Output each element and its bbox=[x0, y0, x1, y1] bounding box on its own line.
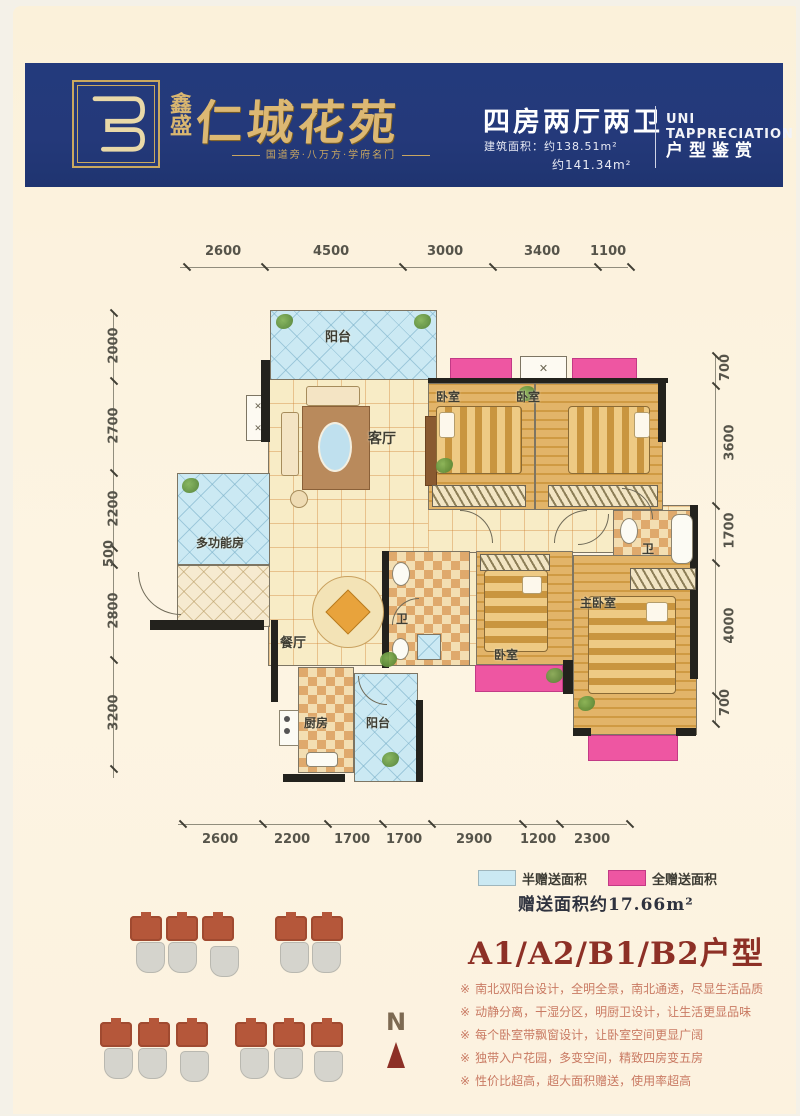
building-shadow-icon bbox=[312, 942, 341, 973]
room-label: 卧室 bbox=[516, 388, 540, 405]
dimension-label: 1700 bbox=[334, 832, 370, 847]
dimension-label: 500 bbox=[102, 540, 117, 567]
legend-half-label: 半赠送面积 bbox=[522, 869, 587, 888]
room-label: 卫 bbox=[642, 540, 654, 557]
feature-bullet-icon: ※ bbox=[460, 1051, 470, 1065]
bathtub-icon bbox=[671, 514, 693, 564]
building-icon bbox=[138, 1022, 170, 1047]
dimension-label: 4500 bbox=[313, 244, 349, 259]
dimension-label: 1200 bbox=[520, 832, 556, 847]
dimension-label: 3400 bbox=[524, 244, 560, 259]
feature-bullet-icon: ※ bbox=[460, 982, 470, 996]
dimension-label: 2800 bbox=[107, 592, 122, 628]
building-shadow-icon bbox=[104, 1048, 133, 1079]
building-icon bbox=[275, 916, 307, 941]
compass-north-label: N bbox=[386, 1008, 406, 1036]
building-shadow-icon bbox=[280, 942, 309, 973]
dimension-label: 2300 bbox=[574, 832, 610, 847]
dimension-label: 2600 bbox=[202, 832, 238, 847]
shower bbox=[417, 634, 441, 660]
brand-name: 仁城花苑 bbox=[194, 84, 499, 153]
feature-item: ※独带入户花园，多变空间，精致四房变五房 bbox=[460, 1047, 703, 1070]
building-shadow-icon bbox=[168, 942, 197, 973]
compass-arrow-icon bbox=[387, 1042, 405, 1068]
built-area-line2: 约141.34m² bbox=[552, 156, 632, 173]
dimension-label: 700 bbox=[718, 689, 733, 716]
header-divider bbox=[655, 106, 656, 168]
dimension-label: 3000 bbox=[427, 244, 463, 259]
building-shadow-icon bbox=[210, 946, 239, 977]
feature-bullet-icon: ※ bbox=[460, 1028, 470, 1042]
dimension-label: 4000 bbox=[723, 607, 738, 643]
building-icon bbox=[166, 916, 198, 941]
brand-vertical-text: 鑫盛 bbox=[166, 92, 192, 136]
toilet-icon bbox=[620, 518, 638, 544]
dimension-label: 1700 bbox=[386, 832, 422, 847]
building-icon bbox=[100, 1022, 132, 1047]
legend-full-label: 全赠送面积 bbox=[652, 869, 717, 888]
building-shadow-icon bbox=[138, 1048, 167, 1079]
building-shadow-icon bbox=[314, 1051, 343, 1082]
dimension-label: 2700 bbox=[107, 407, 122, 443]
feature-item: ※性价比超高，超大面积赠送，使用率超高 bbox=[460, 1070, 691, 1093]
bay-window-master bbox=[588, 735, 678, 761]
sofa-main bbox=[306, 386, 360, 406]
floor-plan: ✕ ✕✕ bbox=[130, 300, 705, 795]
room-label: 阳台 bbox=[366, 714, 390, 731]
feature-bullet-icon: ※ bbox=[460, 1005, 470, 1019]
room-label: 厨房 bbox=[304, 714, 328, 731]
room-label: 客厅 bbox=[368, 428, 396, 448]
building-shadow-icon bbox=[274, 1048, 303, 1079]
coffee-table bbox=[318, 422, 352, 472]
building-shadow-icon bbox=[180, 1051, 209, 1082]
feature-item: ※南北双阳台设计，全明全景，南北通透，尽显生活品质 bbox=[460, 978, 763, 1001]
building-icon bbox=[176, 1022, 208, 1047]
building-icon bbox=[311, 1022, 343, 1047]
dimension-label: 2200 bbox=[107, 490, 122, 526]
feature-item: ※每个卧室带飘窗设计，让卧室空间更显广阔 bbox=[460, 1024, 703, 1047]
unit-type-title: 四房两厅两卫 bbox=[483, 100, 663, 139]
armchair bbox=[290, 490, 308, 508]
legend-half-swatch bbox=[478, 870, 516, 886]
room-label: 卫 bbox=[396, 610, 408, 627]
room-label: 阳台 bbox=[325, 326, 351, 345]
monogram-icon bbox=[74, 82, 158, 166]
dimension-label: 1700 bbox=[723, 512, 738, 548]
sofa-side bbox=[281, 412, 299, 476]
room-label: 卧室 bbox=[494, 646, 518, 663]
gift-area-text: 赠送面积约17.66m² bbox=[518, 890, 694, 915]
brand-logo-icon bbox=[72, 80, 160, 168]
feature-bullet-icon: ※ bbox=[460, 1074, 470, 1088]
dimension-label: 2600 bbox=[205, 244, 241, 259]
room-label: 多功能房 bbox=[196, 534, 244, 551]
dimension-label: 3200 bbox=[107, 694, 122, 730]
sink-icon bbox=[306, 752, 338, 767]
room-label: 餐厅 bbox=[280, 632, 306, 651]
dimension-label: 2200 bbox=[274, 832, 310, 847]
dimension-label: 1100 bbox=[590, 244, 626, 259]
building-shadow-icon bbox=[136, 942, 165, 973]
entry-foyer bbox=[177, 565, 270, 627]
feature-item: ※动静分离，干湿分区，明厨卫设计，让生活更显品味 bbox=[460, 1001, 751, 1024]
appreciation-title: 户型鉴赏 bbox=[666, 136, 758, 161]
building-shadow-icon bbox=[240, 1048, 269, 1079]
dimension-label: 2000 bbox=[107, 327, 122, 363]
dimension-label: 3600 bbox=[723, 424, 738, 460]
building-icon bbox=[235, 1022, 267, 1047]
basin-icon bbox=[392, 562, 410, 586]
legend-full-swatch bbox=[608, 870, 646, 886]
room-label: 主卧室 bbox=[580, 594, 616, 611]
building-icon bbox=[311, 916, 343, 941]
unit-title: A1/A2/B1/B2户型 bbox=[468, 928, 764, 973]
dimension-label: 700 bbox=[718, 354, 733, 381]
flyer-page: { "header": { "brand_vertical": "鑫盛", "b… bbox=[0, 0, 800, 1116]
built-area-line1: 建筑面积：约138.51m² bbox=[484, 138, 618, 154]
building-icon bbox=[130, 916, 162, 941]
balcony-north bbox=[270, 310, 437, 380]
building-icon bbox=[273, 1022, 305, 1047]
room-label: 卧室 bbox=[436, 388, 460, 405]
dimension-label: 2900 bbox=[456, 832, 492, 847]
brand-tagline: 国道旁·八万方·学府名门 bbox=[196, 146, 466, 161]
building-icon bbox=[202, 916, 234, 941]
